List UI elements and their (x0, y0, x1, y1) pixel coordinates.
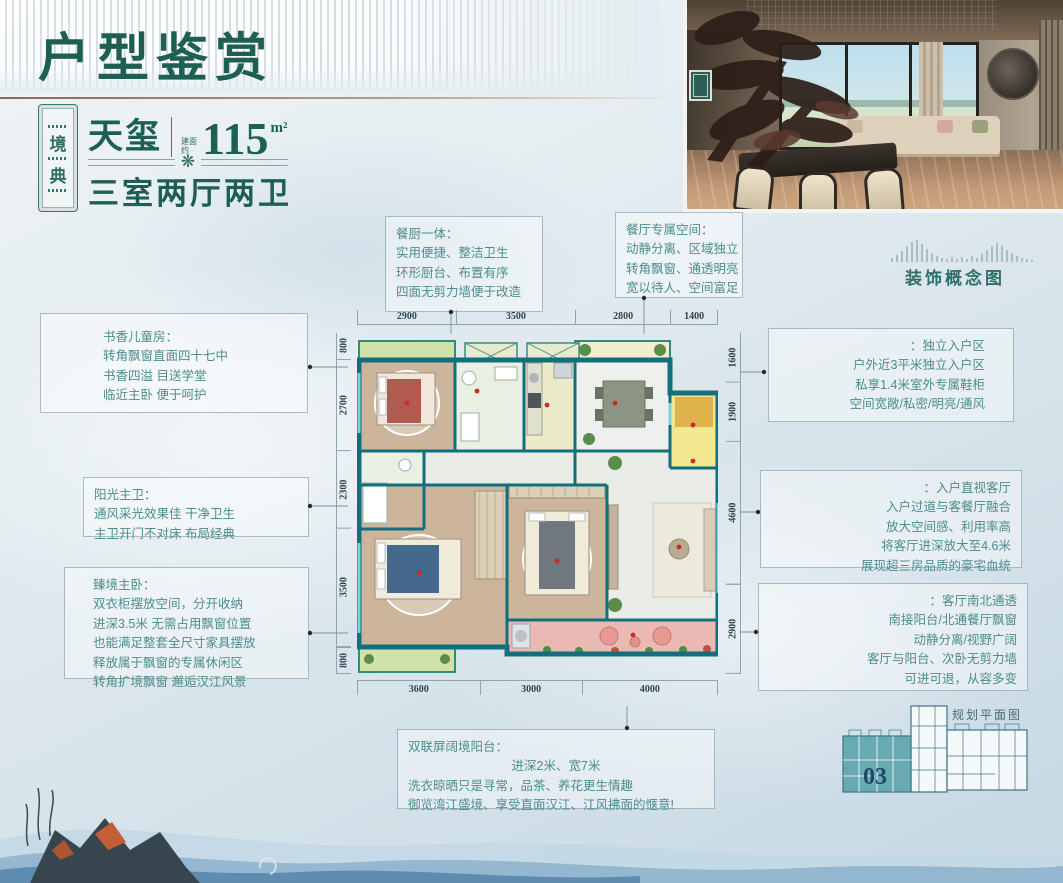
poster-canvas: 户型鉴赏 境 典 天玺 建面约 115 m² ❋ 三室两厅两卫 (0, 0, 1063, 883)
leader-endpoint-dot (308, 296, 766, 730)
wave-decoration (0, 770, 1063, 883)
site-plan-caption: 规划平面图 (952, 706, 1022, 723)
